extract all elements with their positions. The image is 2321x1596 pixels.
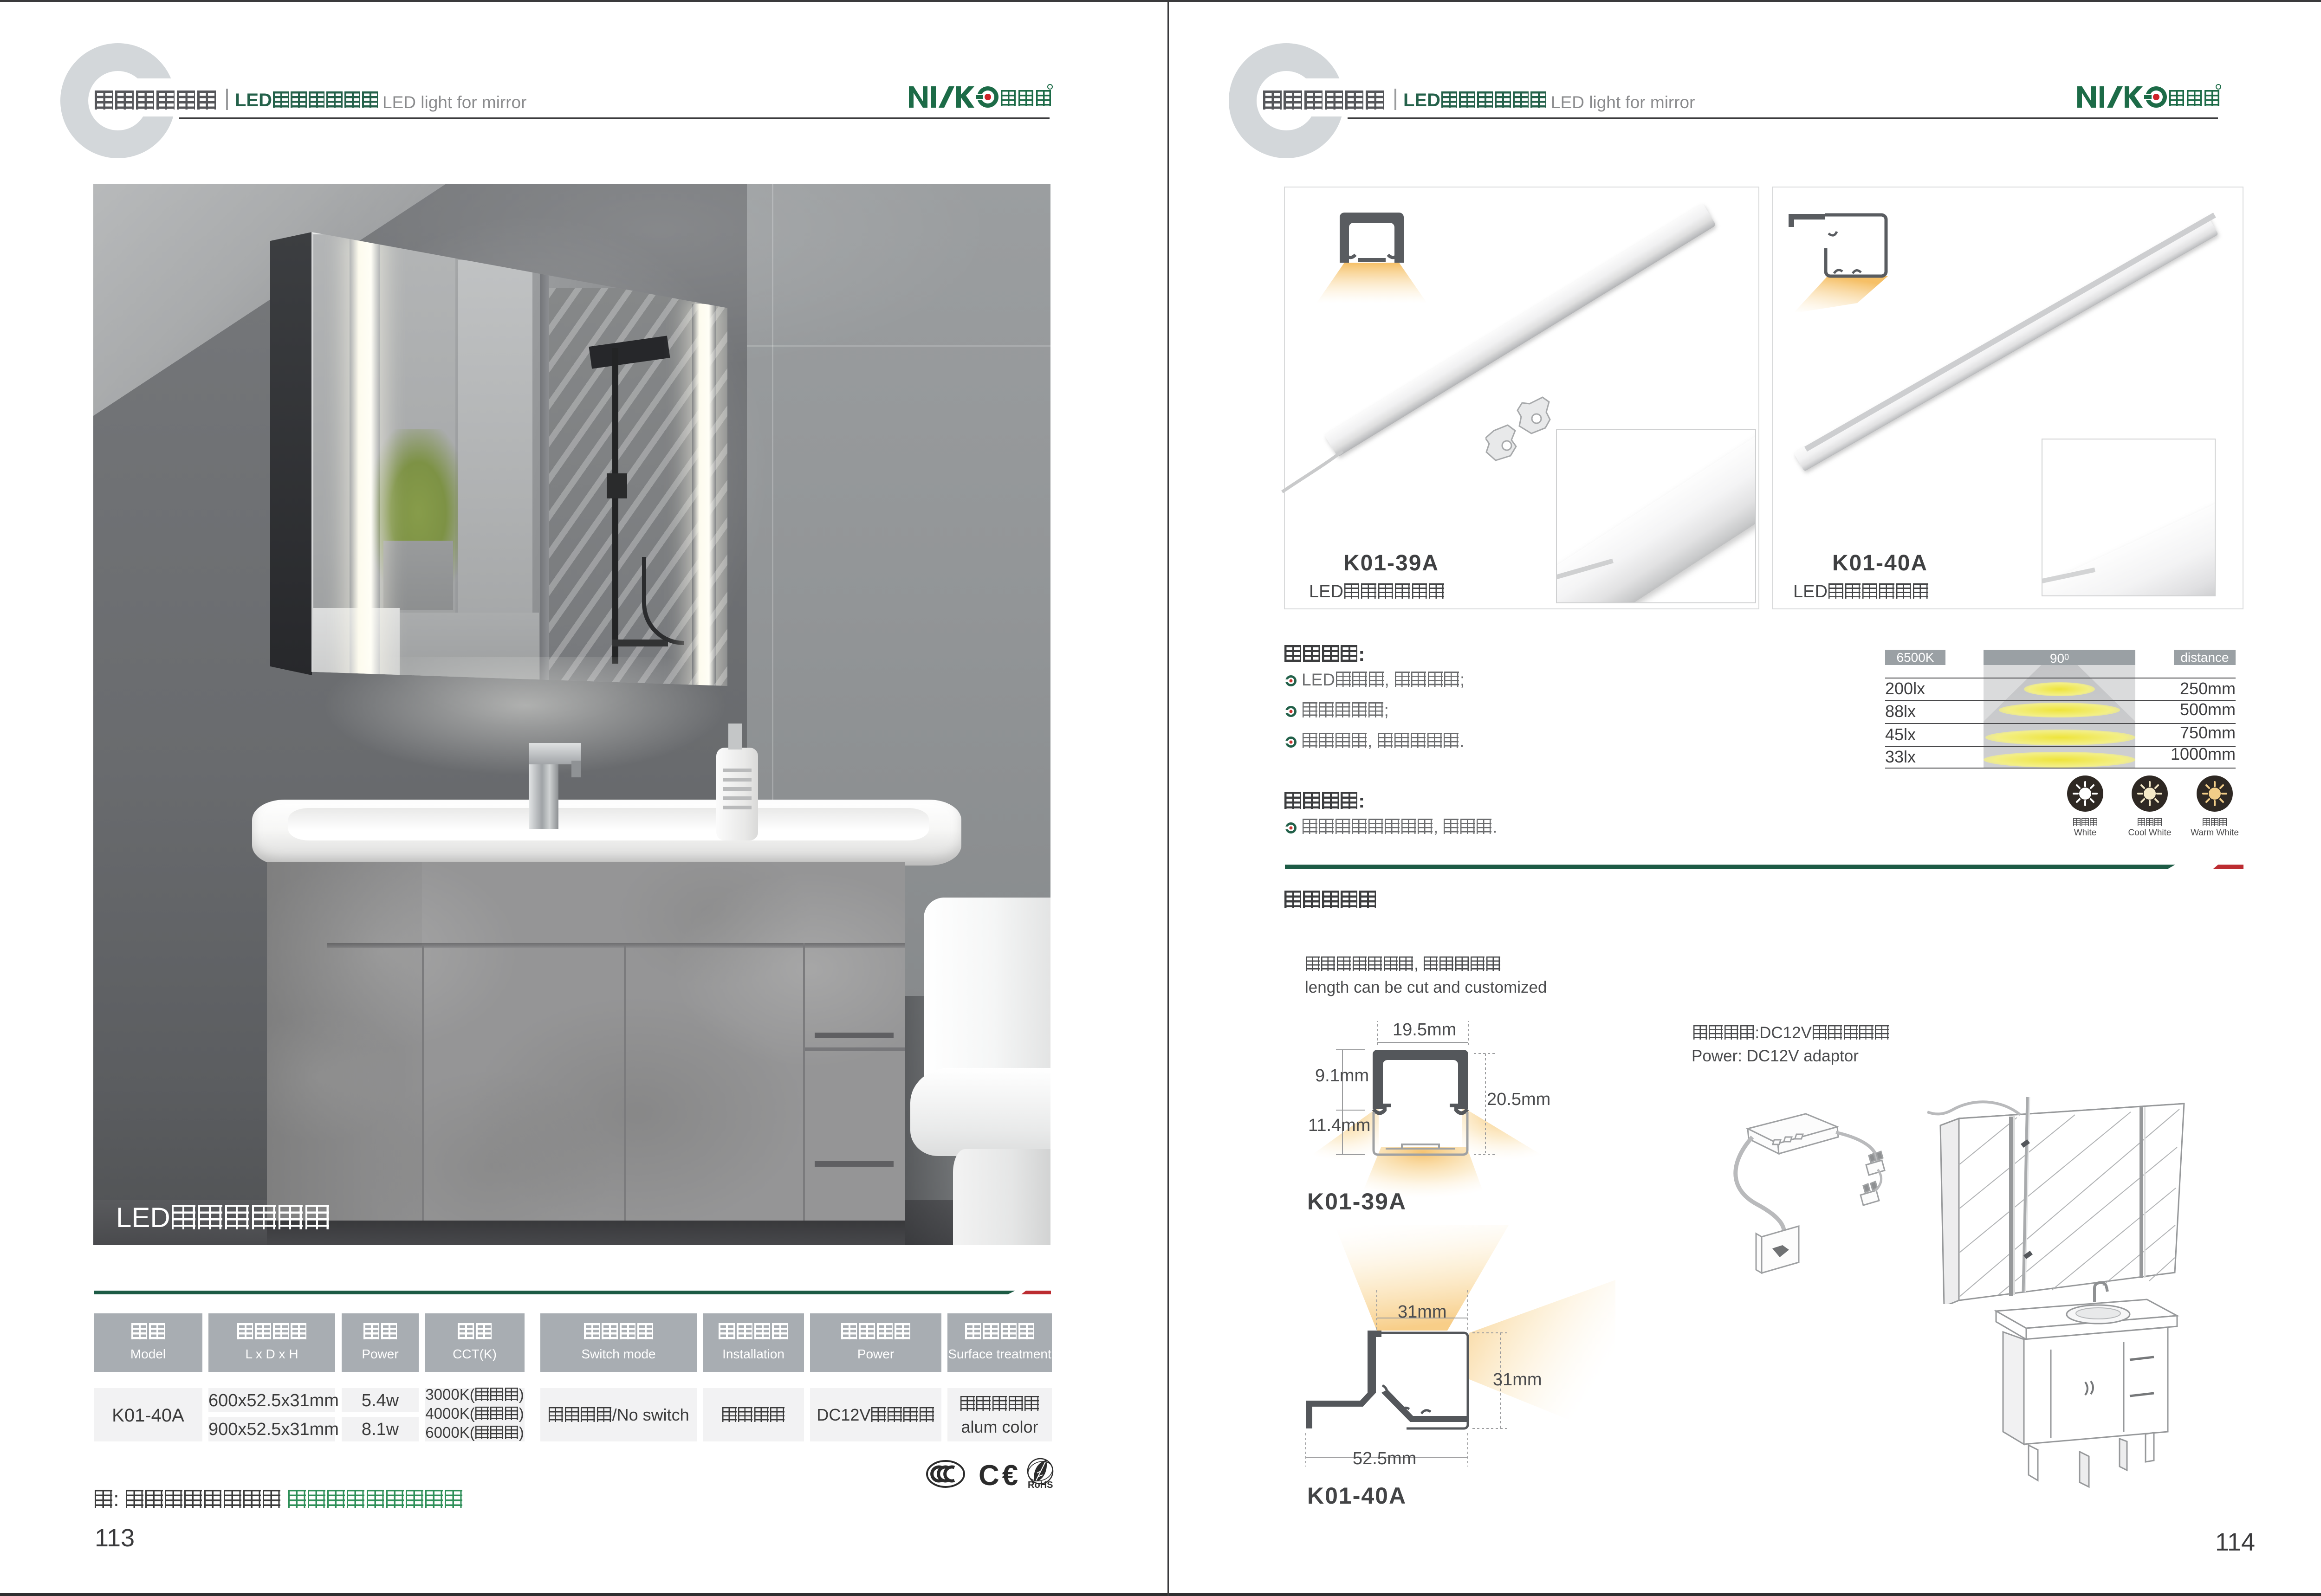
svg-text:RoHS: RoHS (1028, 1480, 1053, 1490)
